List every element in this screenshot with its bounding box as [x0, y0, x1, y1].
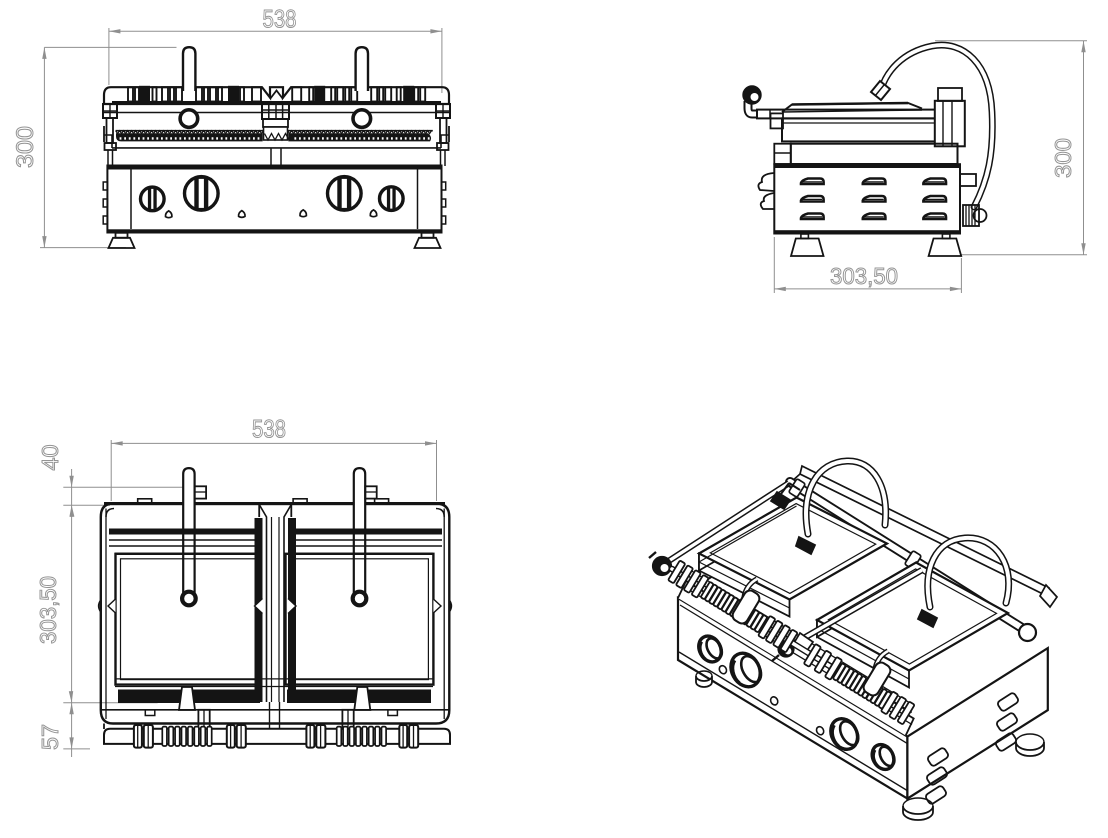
svg-text:57: 57 [37, 724, 63, 750]
svg-text:303,50: 303,50 [830, 263, 898, 289]
svg-text:538: 538 [263, 6, 297, 34]
svg-text:538: 538 [252, 416, 286, 444]
svg-text:300: 300 [12, 126, 39, 168]
svg-text:303,50: 303,50 [35, 576, 61, 644]
svg-text:40: 40 [37, 445, 63, 471]
svg-text:300: 300 [1050, 138, 1076, 178]
